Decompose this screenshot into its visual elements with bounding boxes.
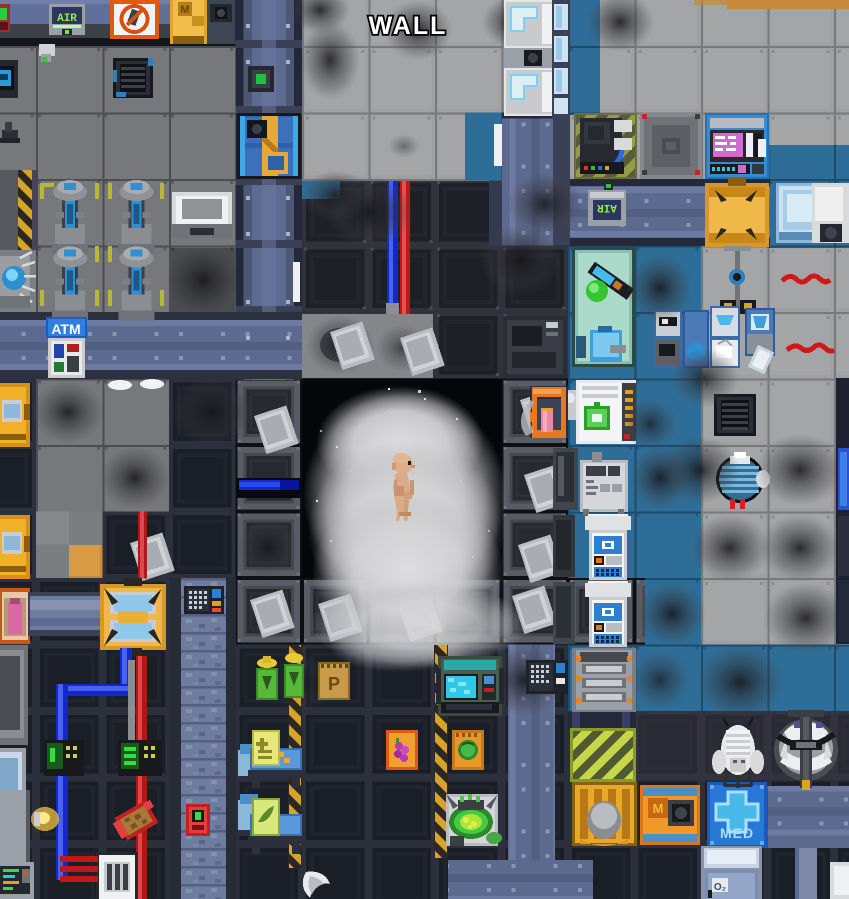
svg-text:ATM: ATM xyxy=(51,321,80,337)
svg-text:M: M xyxy=(653,801,664,816)
svg-text:AIR: AIR xyxy=(597,201,617,213)
svg-text:MED: MED xyxy=(720,825,754,841)
svg-text:WALL: WALL xyxy=(369,12,448,40)
svg-text:AIR: AIR xyxy=(57,13,77,25)
svg-text:P: P xyxy=(328,674,340,694)
svg-text:O₂: O₂ xyxy=(714,882,726,893)
svg-text:M: M xyxy=(180,4,189,16)
